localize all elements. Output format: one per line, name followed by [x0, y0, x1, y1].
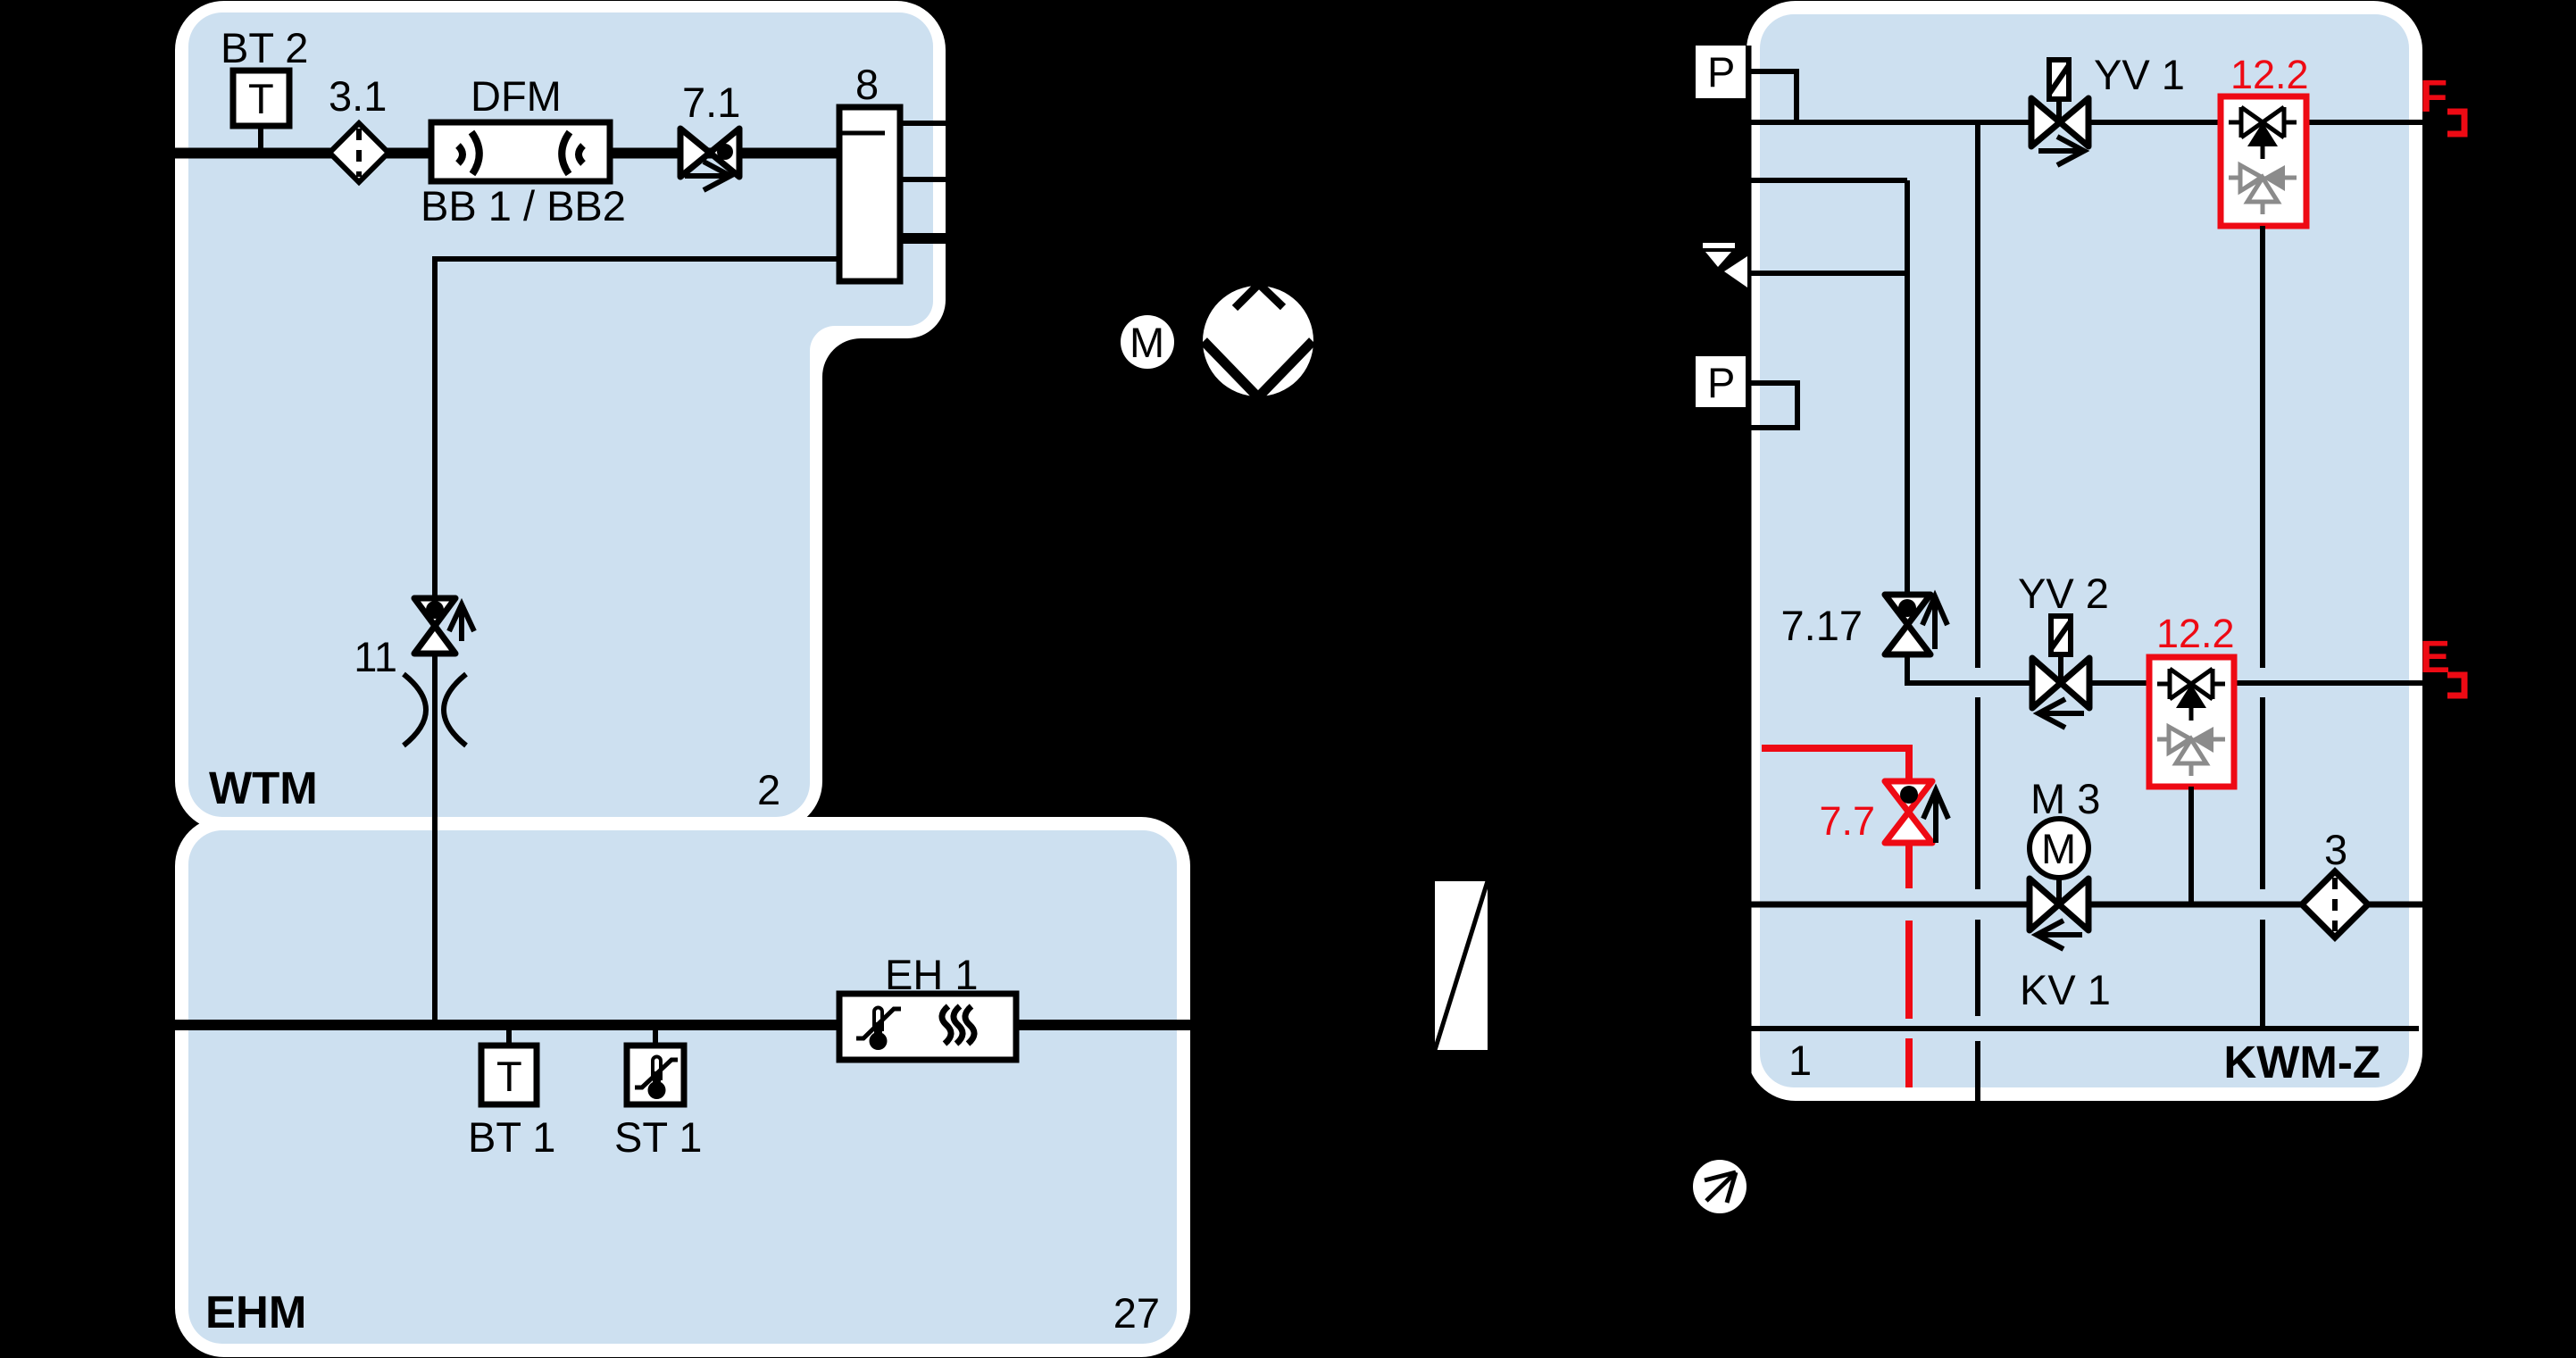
- svg-text:7.17: 7.17: [1781, 602, 1863, 649]
- svg-text:YV 1: YV 1: [2094, 51, 2185, 98]
- svg-text:7.1: 7.1: [682, 79, 740, 126]
- svg-text:DFM: DFM: [471, 72, 562, 120]
- svg-text:1: 1: [1788, 1037, 1812, 1084]
- svg-text:E: E: [2420, 631, 2450, 682]
- svg-text:11: 11: [354, 633, 397, 680]
- svg-text:P: P: [1707, 48, 1735, 96]
- svg-text:KV 1: KV 1: [2020, 966, 2111, 1013]
- svg-text:M: M: [1130, 319, 1164, 366]
- svg-text:8: 8: [855, 61, 879, 108]
- svg-text:12.2: 12.2: [2156, 611, 2235, 656]
- svg-text:2: 2: [757, 766, 780, 813]
- svg-text:T: T: [248, 75, 274, 122]
- svg-text:M: M: [2041, 825, 2076, 872]
- svg-text:27: 27: [1113, 1289, 1160, 1337]
- svg-text:WTM: WTM: [209, 762, 318, 813]
- svg-text:KWM-Z: KWM-Z: [2223, 1037, 2380, 1087]
- svg-text:BT 1: BT 1: [468, 1113, 555, 1161]
- svg-text:EH 1: EH 1: [885, 951, 979, 998]
- svg-text:ST 1: ST 1: [614, 1113, 702, 1161]
- svg-text:7.7: 7.7: [1819, 798, 1875, 844]
- svg-text:YV 2: YV 2: [2018, 570, 2109, 617]
- svg-text:M 3: M 3: [2030, 775, 2100, 822]
- svg-text:3.1: 3.1: [329, 72, 387, 120]
- svg-text:12.2: 12.2: [2230, 52, 2309, 97]
- svg-text:P: P: [1707, 359, 1735, 406]
- svg-text:EHM: EHM: [205, 1287, 306, 1337]
- svg-text:BT 2: BT 2: [221, 24, 308, 71]
- svg-text:F: F: [2420, 71, 2447, 121]
- svg-text:T: T: [496, 1053, 522, 1100]
- svg-text:3: 3: [2324, 826, 2347, 873]
- svg-text:BB 1 / BB2: BB 1 / BB2: [421, 182, 626, 229]
